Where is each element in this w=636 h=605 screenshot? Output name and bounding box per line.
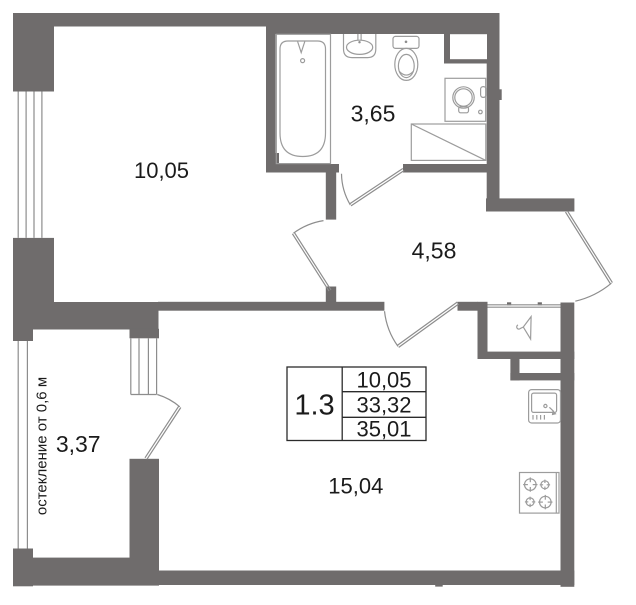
svg-text:33,32: 33,32 — [356, 392, 411, 417]
svg-text:1.3: 1.3 — [294, 390, 334, 422]
svg-text:15,04: 15,04 — [328, 474, 383, 499]
svg-text:35,01: 35,01 — [356, 417, 411, 442]
svg-text:10,05: 10,05 — [356, 367, 411, 392]
svg-text:3,65: 3,65 — [351, 100, 396, 126]
svg-text:4,58: 4,58 — [412, 237, 457, 263]
svg-text:3,37: 3,37 — [56, 431, 101, 457]
svg-text:10,05: 10,05 — [134, 158, 189, 183]
svg-text:остекление от 0,6 м: остекление от 0,6 м — [33, 377, 50, 515]
